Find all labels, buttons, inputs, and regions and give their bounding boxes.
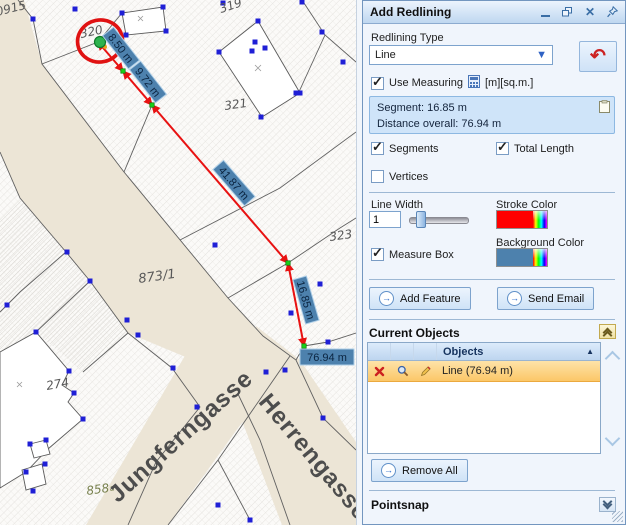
- pin-icon[interactable]: [607, 6, 618, 18]
- send-email-button[interactable]: → Send Email: [497, 287, 594, 310]
- vertices-label: Vertices: [389, 171, 428, 183]
- delete-object-button[interactable]: [368, 366, 391, 377]
- redlining-type-label: Redlining Type: [371, 32, 444, 44]
- object-row-label: Line (76.94 m): [437, 365, 513, 377]
- total-length-label: Total Length: [514, 143, 574, 155]
- measure-box-checkbox[interactable]: ✓: [371, 248, 384, 261]
- line-width-slider-thumb[interactable]: [416, 211, 426, 228]
- use-measuring-row: ✓ Use Measuring [m][sq.m.]: [371, 75, 533, 91]
- background-color-value: [497, 249, 533, 266]
- current-objects-header: Current Objects: [369, 326, 460, 340]
- objects-table-header[interactable]: Objects ▲: [368, 343, 600, 361]
- scroll-down-icon[interactable]: [605, 431, 621, 447]
- segments-checkbox[interactable]: ✓: [371, 142, 384, 155]
- collapse-section-button[interactable]: [599, 324, 616, 339]
- zoom-column-header: [391, 343, 414, 360]
- pointsnap-header: Pointsnap: [371, 498, 429, 512]
- edit-object-button[interactable]: [414, 365, 437, 377]
- application-window: 0915 319 320 321 323 873/1 274 858 a Jun…: [0, 0, 626, 525]
- window-controls: ✕: [541, 6, 618, 18]
- close-icon[interactable]: ✕: [585, 6, 595, 18]
- checkmark-icon: ✓: [372, 245, 383, 261]
- undo-button[interactable]: ↶: [579, 41, 617, 72]
- remove-all-label: Remove All: [402, 465, 458, 477]
- measure-box-label: Measure Box: [389, 249, 454, 261]
- measure-box-row: ✓ Measure Box: [371, 248, 454, 261]
- object-row[interactable]: Line (76.94 m): [368, 361, 600, 382]
- vertices-row: Vertices: [371, 170, 428, 183]
- segments-row: ✓ Segments: [371, 142, 439, 155]
- checkmark-icon: ✓: [372, 74, 383, 90]
- arrow-right-icon: →: [507, 291, 522, 306]
- edit-column-header: [414, 343, 437, 360]
- undo-icon: ↶: [590, 45, 606, 68]
- divider: [369, 490, 615, 491]
- checkmark-icon: ✓: [497, 139, 508, 155]
- add-feature-label: Add Feature: [400, 293, 461, 305]
- arrow-right-icon: →: [379, 291, 394, 306]
- divider: [369, 192, 615, 193]
- objects-table: Objects ▲ Line (76.94 m): [367, 342, 601, 454]
- line-width-label: Line Width: [371, 199, 423, 211]
- background-color-swatch[interactable]: [496, 248, 548, 267]
- redlining-type-dropdown[interactable]: Line ▼: [369, 45, 553, 65]
- objects-column-label: Objects: [443, 346, 483, 358]
- calculator-icon[interactable]: [468, 75, 480, 91]
- zoom-to-object-button[interactable]: [391, 365, 414, 377]
- divider: [369, 319, 615, 320]
- measure-label-total: 76.94 m: [307, 352, 347, 364]
- arrow-right-icon: →: [381, 463, 396, 478]
- color-picker-gradient[interactable]: [533, 211, 547, 228]
- redlining-type-value: Line: [375, 49, 396, 61]
- restore-icon[interactable]: [562, 7, 573, 17]
- map-canvas[interactable]: 0915 319 320 321 323 873/1 274 858 a Jun…: [0, 0, 356, 525]
- resize-grip[interactable]: [612, 511, 623, 522]
- checkmark-icon: ✓: [372, 139, 383, 155]
- divider: [369, 279, 615, 280]
- redlining-panel: Add Redlining ✕ Redlining Type Line ▼ ↶ …: [362, 0, 626, 525]
- use-measuring-checkbox[interactable]: ✓: [371, 77, 384, 90]
- remove-all-button[interactable]: → Remove All: [371, 459, 468, 482]
- use-measuring-label: Use Measuring: [389, 77, 463, 89]
- expand-section-button[interactable]: [599, 497, 616, 512]
- panel-title: Add Redlining: [370, 5, 541, 19]
- vertices-checkbox[interactable]: [371, 170, 384, 183]
- measure-info-box: Segment: 16.85 m Distance overall: 76.94…: [369, 96, 615, 134]
- clipboard-icon[interactable]: [599, 100, 610, 118]
- distance-info: Distance overall: 76.94 m: [377, 116, 607, 132]
- units-label: [m][sq.m.]: [485, 77, 533, 89]
- total-length-row: ✓ Total Length: [496, 142, 574, 155]
- delete-column-header: [368, 343, 391, 360]
- segment-info: Segment: 16.85 m: [377, 100, 607, 116]
- sort-asc-icon[interactable]: ▲: [586, 347, 594, 356]
- stroke-color-swatch[interactable]: [496, 210, 548, 229]
- stroke-color-value: [497, 211, 533, 228]
- scroll-up-icon[interactable]: [605, 351, 621, 367]
- chevron-down-icon: ▼: [536, 50, 547, 60]
- line-width-input[interactable]: [369, 211, 401, 228]
- panel-titlebar[interactable]: Add Redlining ✕: [363, 1, 625, 24]
- segments-label: Segments: [389, 143, 439, 155]
- total-length-checkbox[interactable]: ✓: [496, 142, 509, 155]
- minimize-icon[interactable]: [541, 8, 550, 17]
- send-email-label: Send Email: [528, 293, 584, 305]
- add-feature-button[interactable]: → Add Feature: [369, 287, 471, 310]
- map-viewport: 0915 319 320 321 323 873/1 274 858 a Jun…: [0, 0, 356, 525]
- color-picker-gradient[interactable]: [533, 249, 547, 266]
